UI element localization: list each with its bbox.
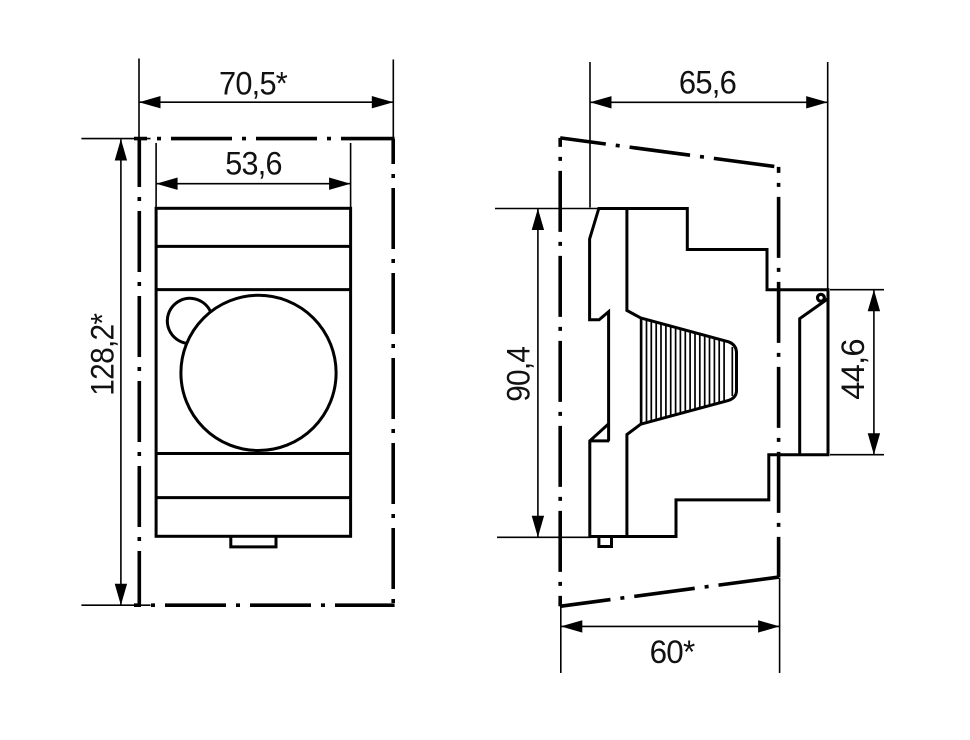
svg-text:128,2*: 128,2* (84, 313, 120, 396)
svg-text:44,6: 44,6 (835, 339, 871, 400)
svg-text:70,5*: 70,5* (219, 65, 288, 101)
svg-text:65,6: 65,6 (679, 65, 736, 101)
svg-text:60*: 60* (650, 634, 696, 670)
svg-text:90,4: 90,4 (501, 346, 537, 402)
svg-text:53,6: 53,6 (225, 146, 282, 182)
